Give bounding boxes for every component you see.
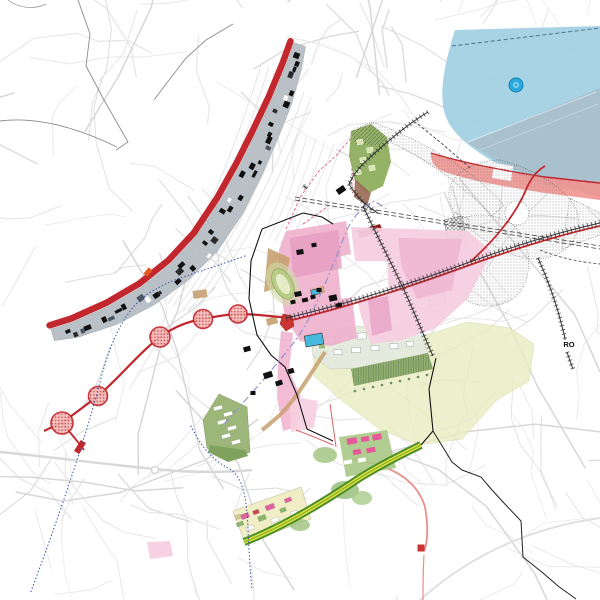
campus-building xyxy=(390,343,398,349)
street xyxy=(518,383,533,438)
street xyxy=(45,214,126,225)
tree-dot xyxy=(408,378,411,381)
tree-dot xyxy=(390,382,393,385)
street xyxy=(587,0,600,14)
building xyxy=(336,185,347,195)
avenue xyxy=(0,93,14,218)
street xyxy=(0,460,51,517)
avenue xyxy=(85,0,180,132)
building xyxy=(317,288,322,292)
roundabout-marker xyxy=(51,412,73,434)
street xyxy=(391,27,406,82)
contour-line xyxy=(269,135,307,239)
street xyxy=(440,0,459,2)
street xyxy=(446,571,524,600)
street xyxy=(99,10,137,81)
street xyxy=(0,392,51,483)
green-blob xyxy=(313,447,337,463)
roundabout-marker xyxy=(194,310,213,329)
street xyxy=(94,76,133,211)
campus-top-building xyxy=(357,139,364,145)
building xyxy=(263,371,273,379)
pink-patch-bottom-left xyxy=(147,541,173,559)
green-blob xyxy=(352,491,372,505)
street xyxy=(311,18,342,64)
tree-dot xyxy=(372,386,375,389)
roundabout-marker xyxy=(89,387,108,406)
avenue xyxy=(390,452,559,600)
street xyxy=(115,204,162,274)
avenue xyxy=(356,0,425,78)
street xyxy=(2,247,35,307)
street xyxy=(0,341,41,442)
street xyxy=(0,109,38,164)
riverfront-strip xyxy=(50,41,306,340)
street xyxy=(0,205,62,218)
airport-marker-group xyxy=(509,78,523,92)
street xyxy=(541,415,557,506)
street xyxy=(576,314,600,419)
street xyxy=(151,343,219,416)
street xyxy=(588,267,598,334)
street xyxy=(52,87,76,157)
street xyxy=(510,0,537,25)
street xyxy=(589,423,600,461)
street xyxy=(130,163,195,190)
tree-dot xyxy=(417,376,420,379)
building xyxy=(311,243,317,248)
building xyxy=(243,346,251,353)
street xyxy=(254,31,360,69)
campus-building xyxy=(334,349,342,355)
tree-dot xyxy=(399,380,402,383)
red-square-marker xyxy=(418,545,425,552)
roundabout-marker xyxy=(150,327,170,347)
street xyxy=(247,281,274,371)
street xyxy=(176,0,242,8)
street xyxy=(66,265,146,282)
building xyxy=(296,249,304,255)
campus-building xyxy=(406,341,413,346)
roundabout-marker xyxy=(229,305,247,323)
street xyxy=(511,380,555,510)
tree-dot xyxy=(363,388,366,391)
terminus-marker xyxy=(74,440,86,454)
campus-building xyxy=(371,345,379,351)
green-triangle-development xyxy=(203,394,250,462)
street xyxy=(566,493,600,576)
masterplan-map: RO xyxy=(0,0,600,600)
rail-label-ro: RO xyxy=(563,340,574,349)
tree-dot xyxy=(354,390,357,393)
street xyxy=(508,549,600,573)
street xyxy=(483,0,520,24)
tree-dot xyxy=(381,384,384,387)
street xyxy=(196,35,209,124)
masterplan-map-canvas[interactable]: RO xyxy=(0,0,600,600)
street xyxy=(35,510,51,569)
avenue xyxy=(288,0,395,3)
airport-marker xyxy=(509,78,523,92)
campus-building xyxy=(357,333,366,340)
campus-top-building xyxy=(369,165,376,171)
street xyxy=(343,503,349,587)
tree-dot xyxy=(426,374,429,377)
street xyxy=(192,576,206,600)
strip-body xyxy=(51,43,306,341)
street xyxy=(325,72,343,102)
street xyxy=(55,581,112,595)
street xyxy=(139,0,238,4)
street xyxy=(382,9,389,67)
street xyxy=(532,545,600,579)
small-roundabout xyxy=(152,467,159,474)
campus-top-building xyxy=(367,147,374,153)
building xyxy=(251,391,256,395)
street xyxy=(380,596,401,600)
campus-building xyxy=(351,347,360,353)
